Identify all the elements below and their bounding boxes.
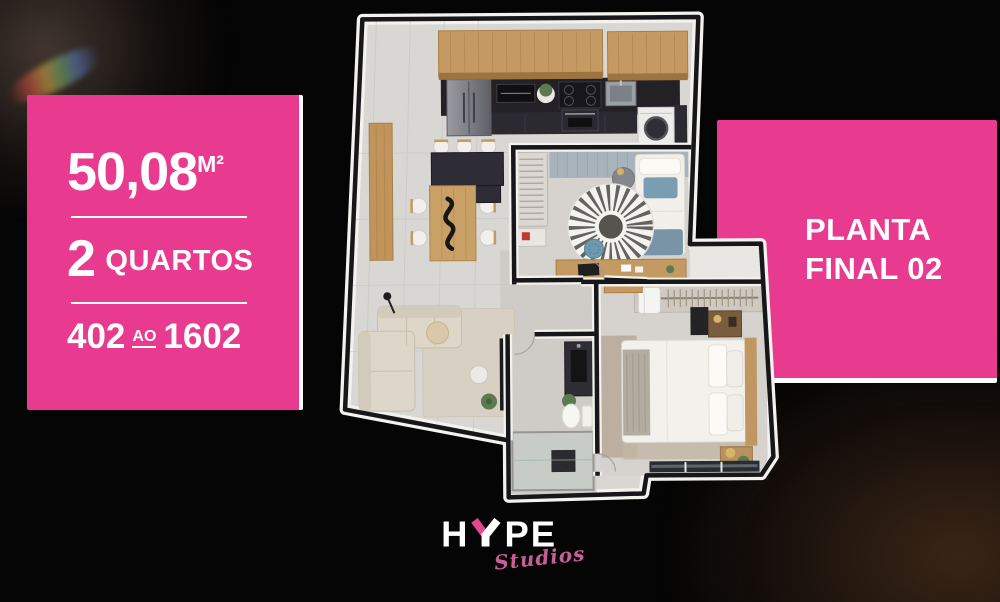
kitchen-plant (539, 84, 552, 97)
upper-cabinets-right (607, 31, 687, 78)
oven-window (568, 118, 592, 127)
logo-letter-y (474, 520, 497, 546)
logo-letter-h: H (441, 514, 467, 555)
bedroom-1 (515, 148, 689, 281)
white-pillow (639, 158, 680, 174)
papers (635, 266, 643, 272)
hanging-clothes (668, 289, 752, 308)
plan-title-line2: FINAL 02 (805, 249, 997, 288)
sofa-back (377, 306, 461, 319)
cabinet-front-edge (608, 73, 688, 81)
units-range: 402AO1602 (67, 319, 299, 354)
divider-line (71, 302, 247, 304)
desk-plant (666, 265, 674, 273)
units-from: 402 (67, 317, 125, 356)
units-connector: AO (132, 329, 156, 348)
island-return (476, 185, 501, 202)
side-table (470, 366, 488, 384)
brand-logo: H P E Studios (438, 510, 568, 580)
laptop (578, 263, 600, 276)
poster-canvas: 50,08M² 2QUARTOS 402AO1602 PLANTA FINAL … (0, 0, 1000, 602)
area-value: 50,08M² (67, 145, 299, 199)
bedrooms-line: 2QUARTOS (67, 233, 299, 285)
pillow (709, 345, 727, 387)
divider-line (71, 216, 247, 218)
shower-column (551, 450, 575, 472)
tv-panel-bedroom2 (690, 307, 708, 335)
faucet (577, 344, 581, 348)
vanity-sink (571, 350, 587, 382)
wicker-chair (584, 239, 603, 258)
floor-plan (334, 0, 793, 508)
pillow (727, 351, 743, 387)
apartment-shell (342, 17, 773, 499)
pillow (727, 395, 743, 431)
kitchen (438, 29, 688, 149)
toilet (562, 404, 580, 428)
headboard (745, 338, 758, 446)
nightstand-lamp (713, 315, 721, 323)
cabinet-front-edge (439, 72, 603, 80)
kitchen-island (431, 152, 503, 186)
bedroom2-window (649, 461, 759, 473)
wood-wall-panel (369, 123, 393, 260)
pendant-ball-lamp (426, 322, 448, 344)
blue-pillow (643, 177, 677, 198)
bathroom (509, 334, 597, 495)
bedrooms-label: QUARTOS (105, 245, 253, 277)
living-room (358, 291, 515, 417)
specs-card: 50,08M² 2QUARTOS 402AO1602 (27, 95, 303, 410)
papers (621, 265, 631, 272)
area-unit: M² (197, 151, 224, 177)
sofa-arm (359, 331, 372, 411)
gold-lamp (617, 168, 624, 175)
units-to: 1602 (163, 317, 241, 356)
toilet-tank (582, 406, 592, 427)
plan-title-line1: PLANTA (805, 210, 997, 249)
nightstand-top (708, 311, 741, 337)
bedrooms-number: 2 (67, 230, 96, 288)
pillow (709, 393, 727, 435)
ball-lamp (725, 448, 735, 458)
red-box (522, 232, 530, 240)
dining-area (369, 122, 504, 261)
laundry-cabinet (674, 105, 687, 147)
